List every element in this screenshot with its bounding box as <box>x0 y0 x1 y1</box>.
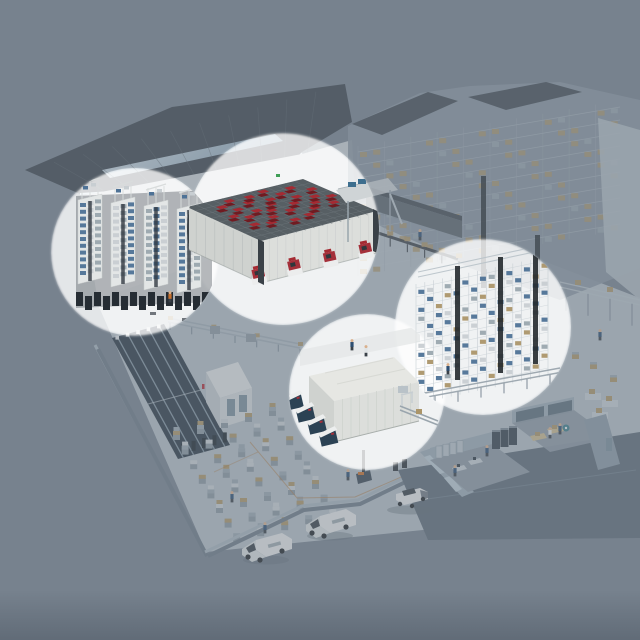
scene-svg <box>0 0 640 640</box>
slate-tint-overlay <box>0 0 640 640</box>
warehouse-illustration <box>0 0 640 640</box>
bottom-vignette <box>0 590 640 640</box>
